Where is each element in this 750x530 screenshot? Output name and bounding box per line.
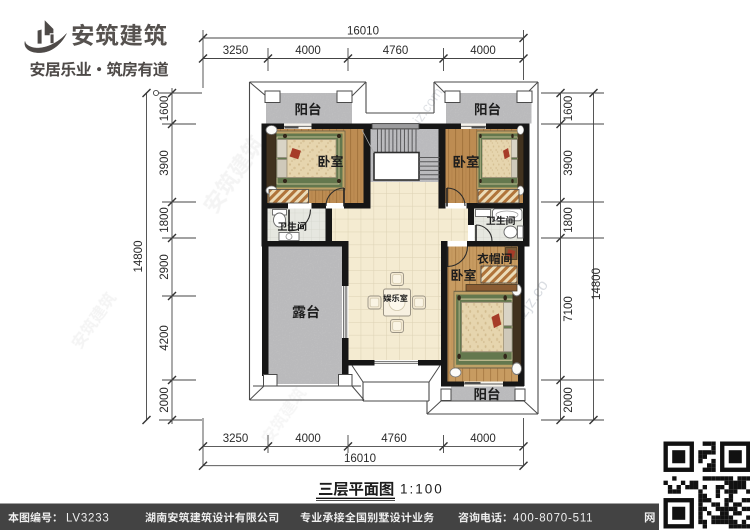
svg-text:400-8070-511: 400-8070-511 bbox=[513, 513, 593, 525]
svg-text:3250: 3250 bbox=[223, 433, 249, 445]
svg-text:2900: 2900 bbox=[159, 254, 171, 280]
svg-text:16010: 16010 bbox=[344, 453, 376, 465]
svg-text:1800: 1800 bbox=[159, 207, 171, 233]
svg-text:4000: 4000 bbox=[470, 433, 496, 445]
svg-text:4000: 4000 bbox=[470, 45, 496, 57]
svg-text:1:100: 1:100 bbox=[400, 482, 444, 497]
svg-text:7100: 7100 bbox=[563, 296, 575, 322]
svg-text:4000: 4000 bbox=[295, 433, 321, 445]
svg-text:1600: 1600 bbox=[563, 96, 575, 122]
svg-text:2000: 2000 bbox=[563, 387, 575, 413]
svg-text:14800: 14800 bbox=[133, 241, 145, 273]
svg-text:3250: 3250 bbox=[223, 45, 249, 57]
svg-text:4760: 4760 bbox=[383, 45, 409, 57]
svg-text:jz.com: jz.com bbox=[409, 84, 446, 127]
svg-text:3900: 3900 bbox=[159, 150, 171, 176]
svg-text:4000: 4000 bbox=[295, 45, 321, 57]
svg-text:14800: 14800 bbox=[591, 268, 603, 300]
svg-text:3900: 3900 bbox=[563, 150, 575, 176]
svg-text:2000: 2000 bbox=[159, 387, 171, 413]
svg-text:4200: 4200 bbox=[159, 325, 171, 351]
svg-text:4760: 4760 bbox=[381, 433, 407, 445]
svg-text:1600: 1600 bbox=[159, 96, 171, 122]
svg-text:16010: 16010 bbox=[347, 26, 379, 38]
svg-text:LV3233: LV3233 bbox=[66, 513, 110, 525]
svg-text:1800: 1800 bbox=[563, 207, 575, 233]
